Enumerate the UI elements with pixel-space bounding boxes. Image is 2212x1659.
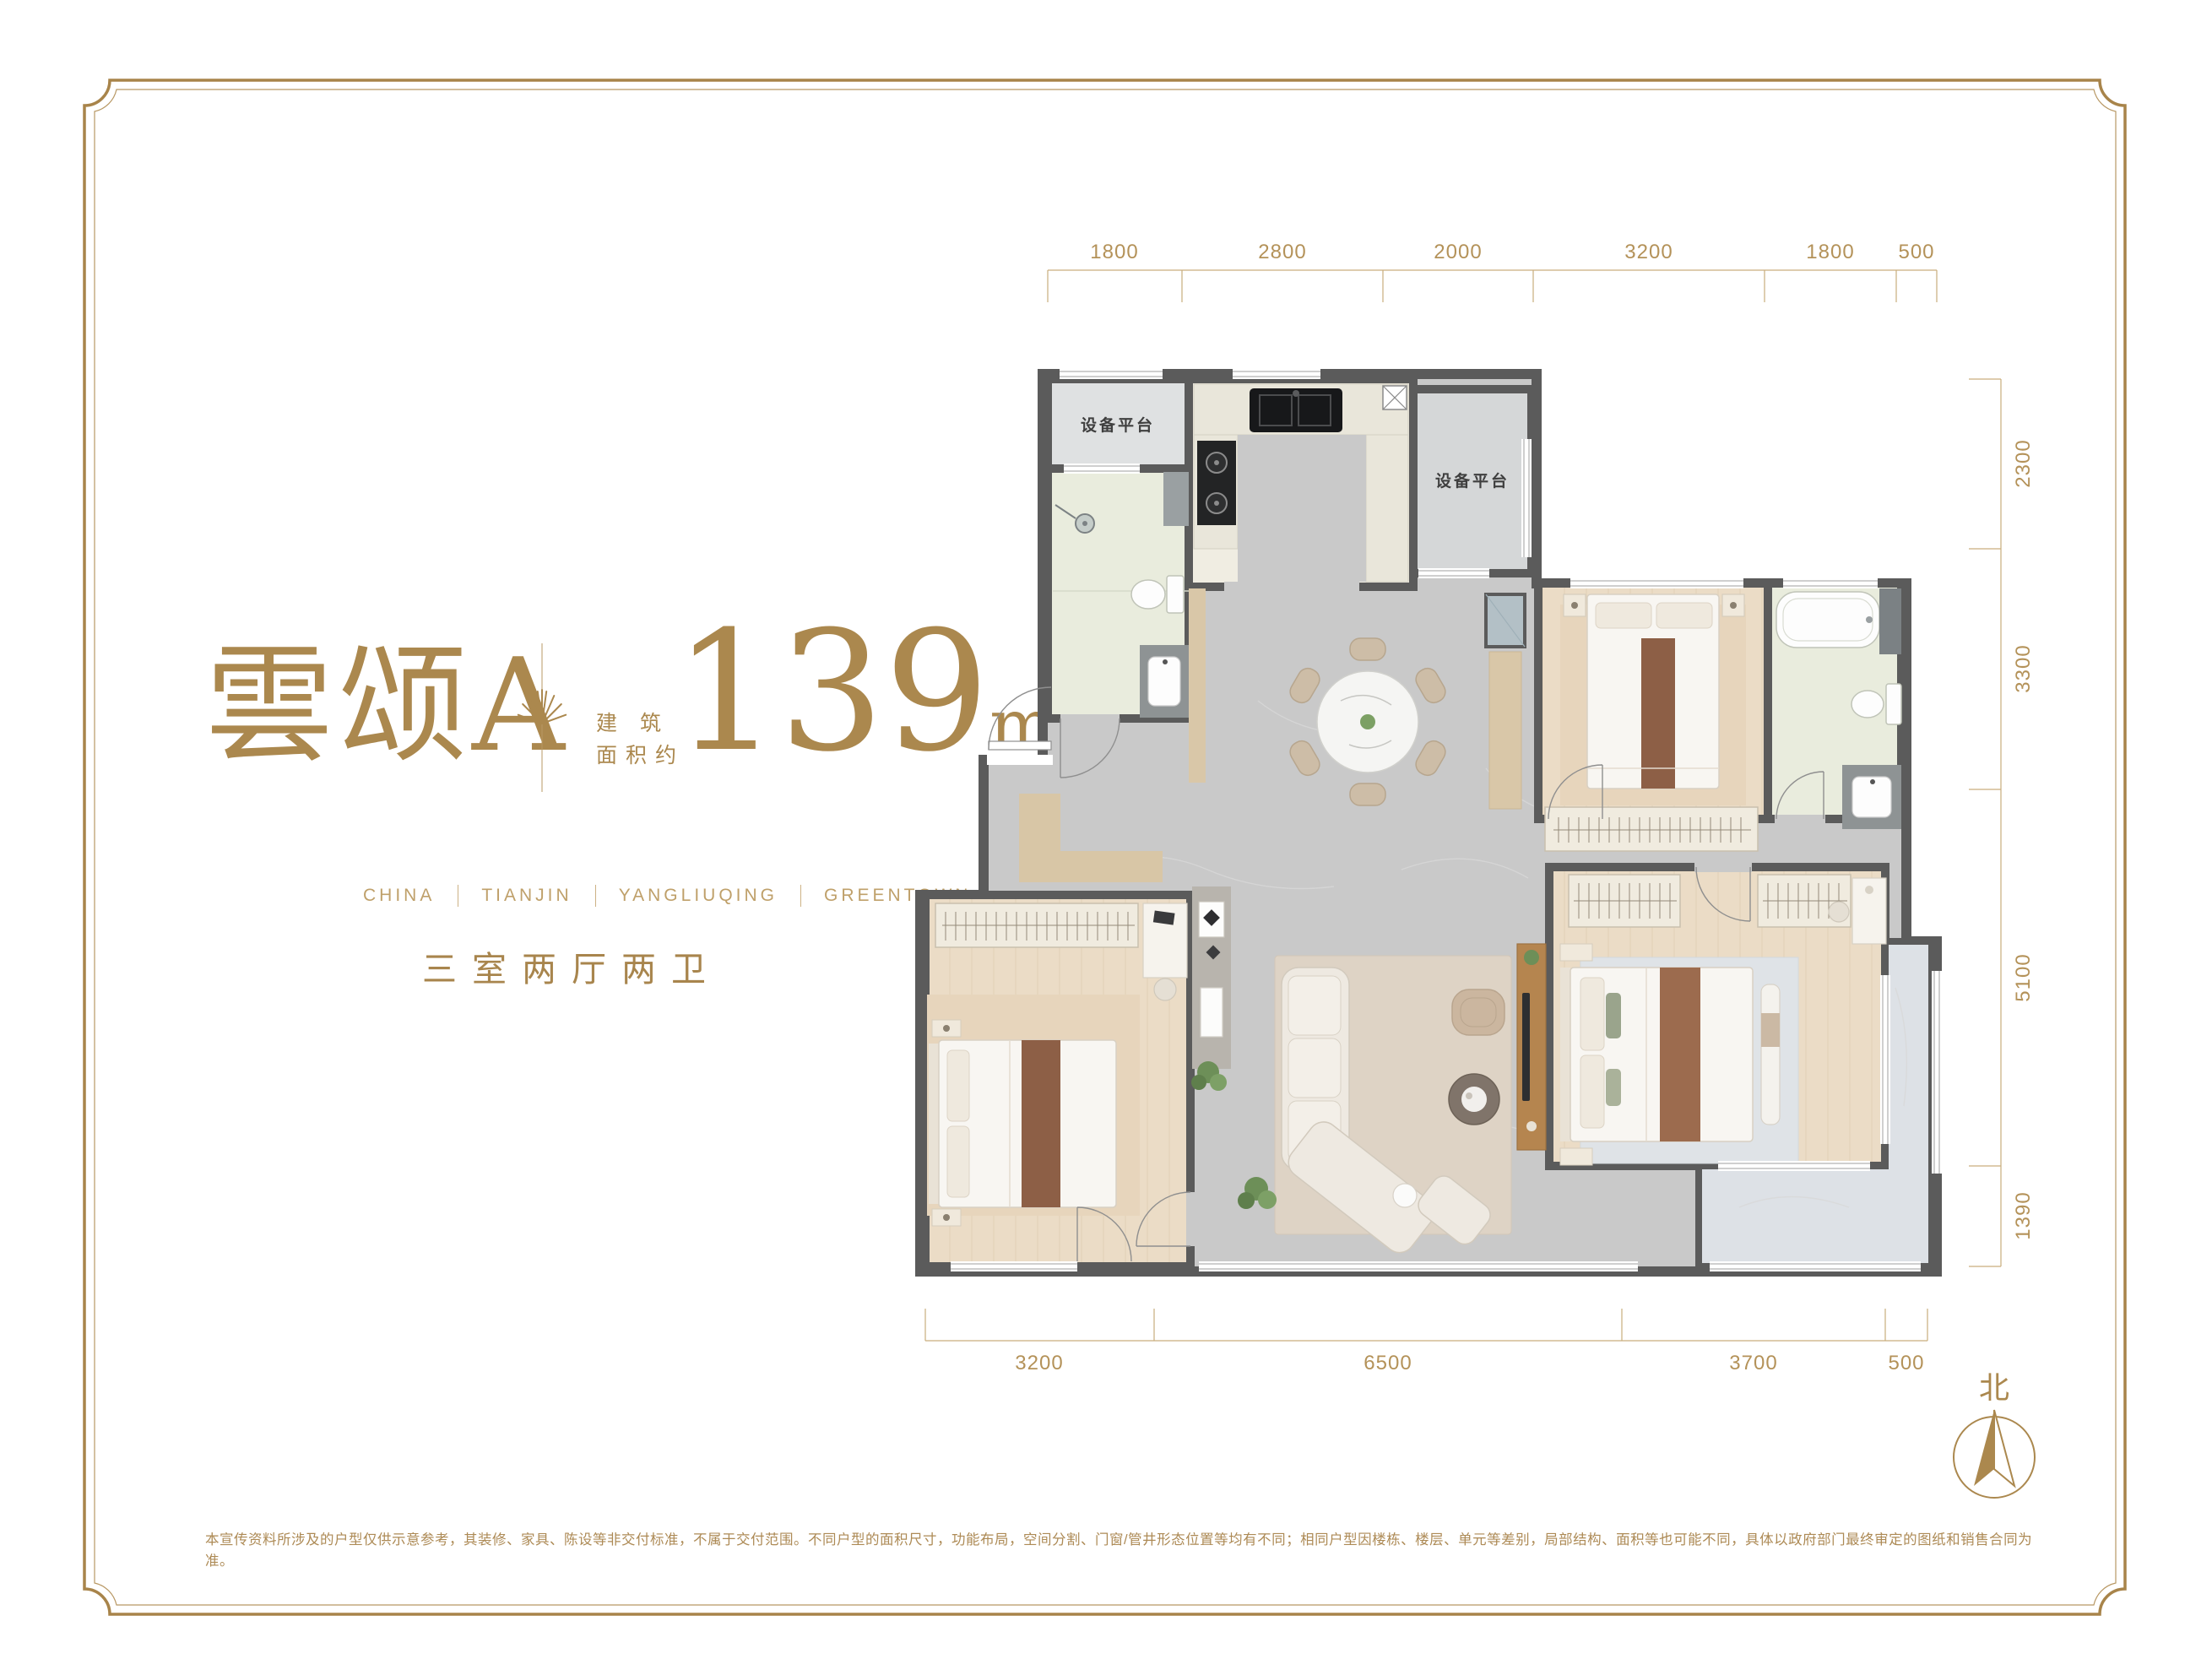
dimension-top: 1800 2800 2000 3200 1800 500 [1048, 241, 1937, 302]
dim-right-3: 5100 [2012, 953, 2035, 1001]
dim-top-4: 3200 [1624, 241, 1673, 263]
ginkgo-fan-icon [517, 643, 567, 792]
bath-cabinet [1163, 472, 1189, 526]
label-equipment-platform-1: 设备平台 [1081, 415, 1155, 435]
dim-right-4: 1390 [2012, 1191, 2035, 1239]
tagline-separator [800, 885, 801, 907]
area-prefix-label: 建 筑 面积约 [596, 708, 685, 772]
toilet-icon [1131, 580, 1165, 609]
tagline-separator [595, 885, 596, 907]
area-prefix-line1: 建 筑 [596, 708, 685, 740]
bed-bench [1761, 984, 1780, 1125]
dim-top-3: 2000 [1434, 241, 1482, 263]
tv-icon [1522, 993, 1530, 1101]
tagline-tianjin: TIANJIN [481, 886, 572, 906]
pouf [1452, 989, 1504, 1035]
dim-top-2: 2800 [1258, 241, 1306, 263]
bed-south-runner [1022, 1040, 1060, 1207]
floor-plan: 1800 2800 2000 3200 1800 500 2300 3300 5… [895, 228, 2068, 1376]
compass-north-label: 北 [1979, 1371, 2009, 1406]
table-plant [1360, 714, 1375, 729]
brand-tagline: CHINA TIANJIN YANGLIUQING GREENTOWN [363, 885, 971, 907]
makeup-stool [1829, 902, 1849, 922]
doorway-kitchen [1224, 582, 1359, 592]
toilet-tank-2 [1886, 684, 1901, 724]
dim-bottom-2: 6500 [1364, 1352, 1412, 1374]
doorway-master-bath [1775, 815, 1825, 824]
disclaimer-text: 本宣传资料所涉及的户型仅供示意参考，其装修、家具、陈设等非交付标准，不属于交付范… [205, 1530, 2054, 1572]
wall-finish-strip-2 [1489, 652, 1521, 809]
tagline-china: CHINA [363, 886, 435, 906]
dim-bottom-1: 3200 [1015, 1352, 1063, 1374]
dim-top-6: 500 [1898, 241, 1934, 263]
tagline-separator [458, 885, 458, 907]
doorway-guest-bath [1060, 714, 1120, 724]
doorway-master-bedroom [1694, 863, 1752, 872]
doorway-bedroom-south [1186, 1192, 1195, 1246]
wall-finish-strip-1 [1189, 588, 1206, 783]
dim-bottom-4: 500 [1888, 1352, 1924, 1374]
label-equipment-platform-2: 设备平台 [1435, 471, 1510, 491]
tv-console [1517, 944, 1546, 1150]
tagline-yangliuqing: YANGLIUQING [619, 886, 778, 906]
north-compass: 北 [1927, 1358, 2062, 1526]
brochure-page: 雲颂A 建 筑 面积约 139m2 CHINA TIANJIN YANGLIUQ… [0, 0, 2212, 1659]
living-room-furniture [1238, 944, 1546, 1259]
bed-master-runner [1660, 968, 1700, 1141]
bath-niche [1879, 588, 1901, 654]
entry-door-leaf [989, 741, 1051, 750]
plan-title: 雲颂A [205, 635, 570, 776]
wardrobe-north [1545, 807, 1758, 851]
dim-bottom-3: 3700 [1729, 1352, 1777, 1374]
dimension-right: 2300 3300 5100 1390 [1969, 379, 2035, 1266]
kitchen-walkway [1238, 435, 1366, 582]
dimension-bottom: 3200 6500 3700 500 [925, 1309, 1927, 1374]
area-prefix-line2: 面积约 [596, 740, 685, 772]
dim-top-5: 1800 [1806, 241, 1854, 263]
dim-right-2: 3300 [2012, 644, 2035, 692]
bed-north-runner [1641, 638, 1675, 789]
layout-type-label: 三室两厅两卫 [422, 941, 721, 991]
dim-right-1: 2300 [2012, 439, 2035, 487]
bedroom-north-furniture [1545, 594, 1758, 851]
doorway-entry [987, 755, 1053, 765]
desk-chair [1154, 979, 1176, 1000]
toilet-tank [1167, 576, 1184, 613]
dim-top-1: 1800 [1090, 241, 1138, 263]
hall-console [1201, 988, 1223, 1037]
toilet-icon-2 [1851, 691, 1884, 718]
